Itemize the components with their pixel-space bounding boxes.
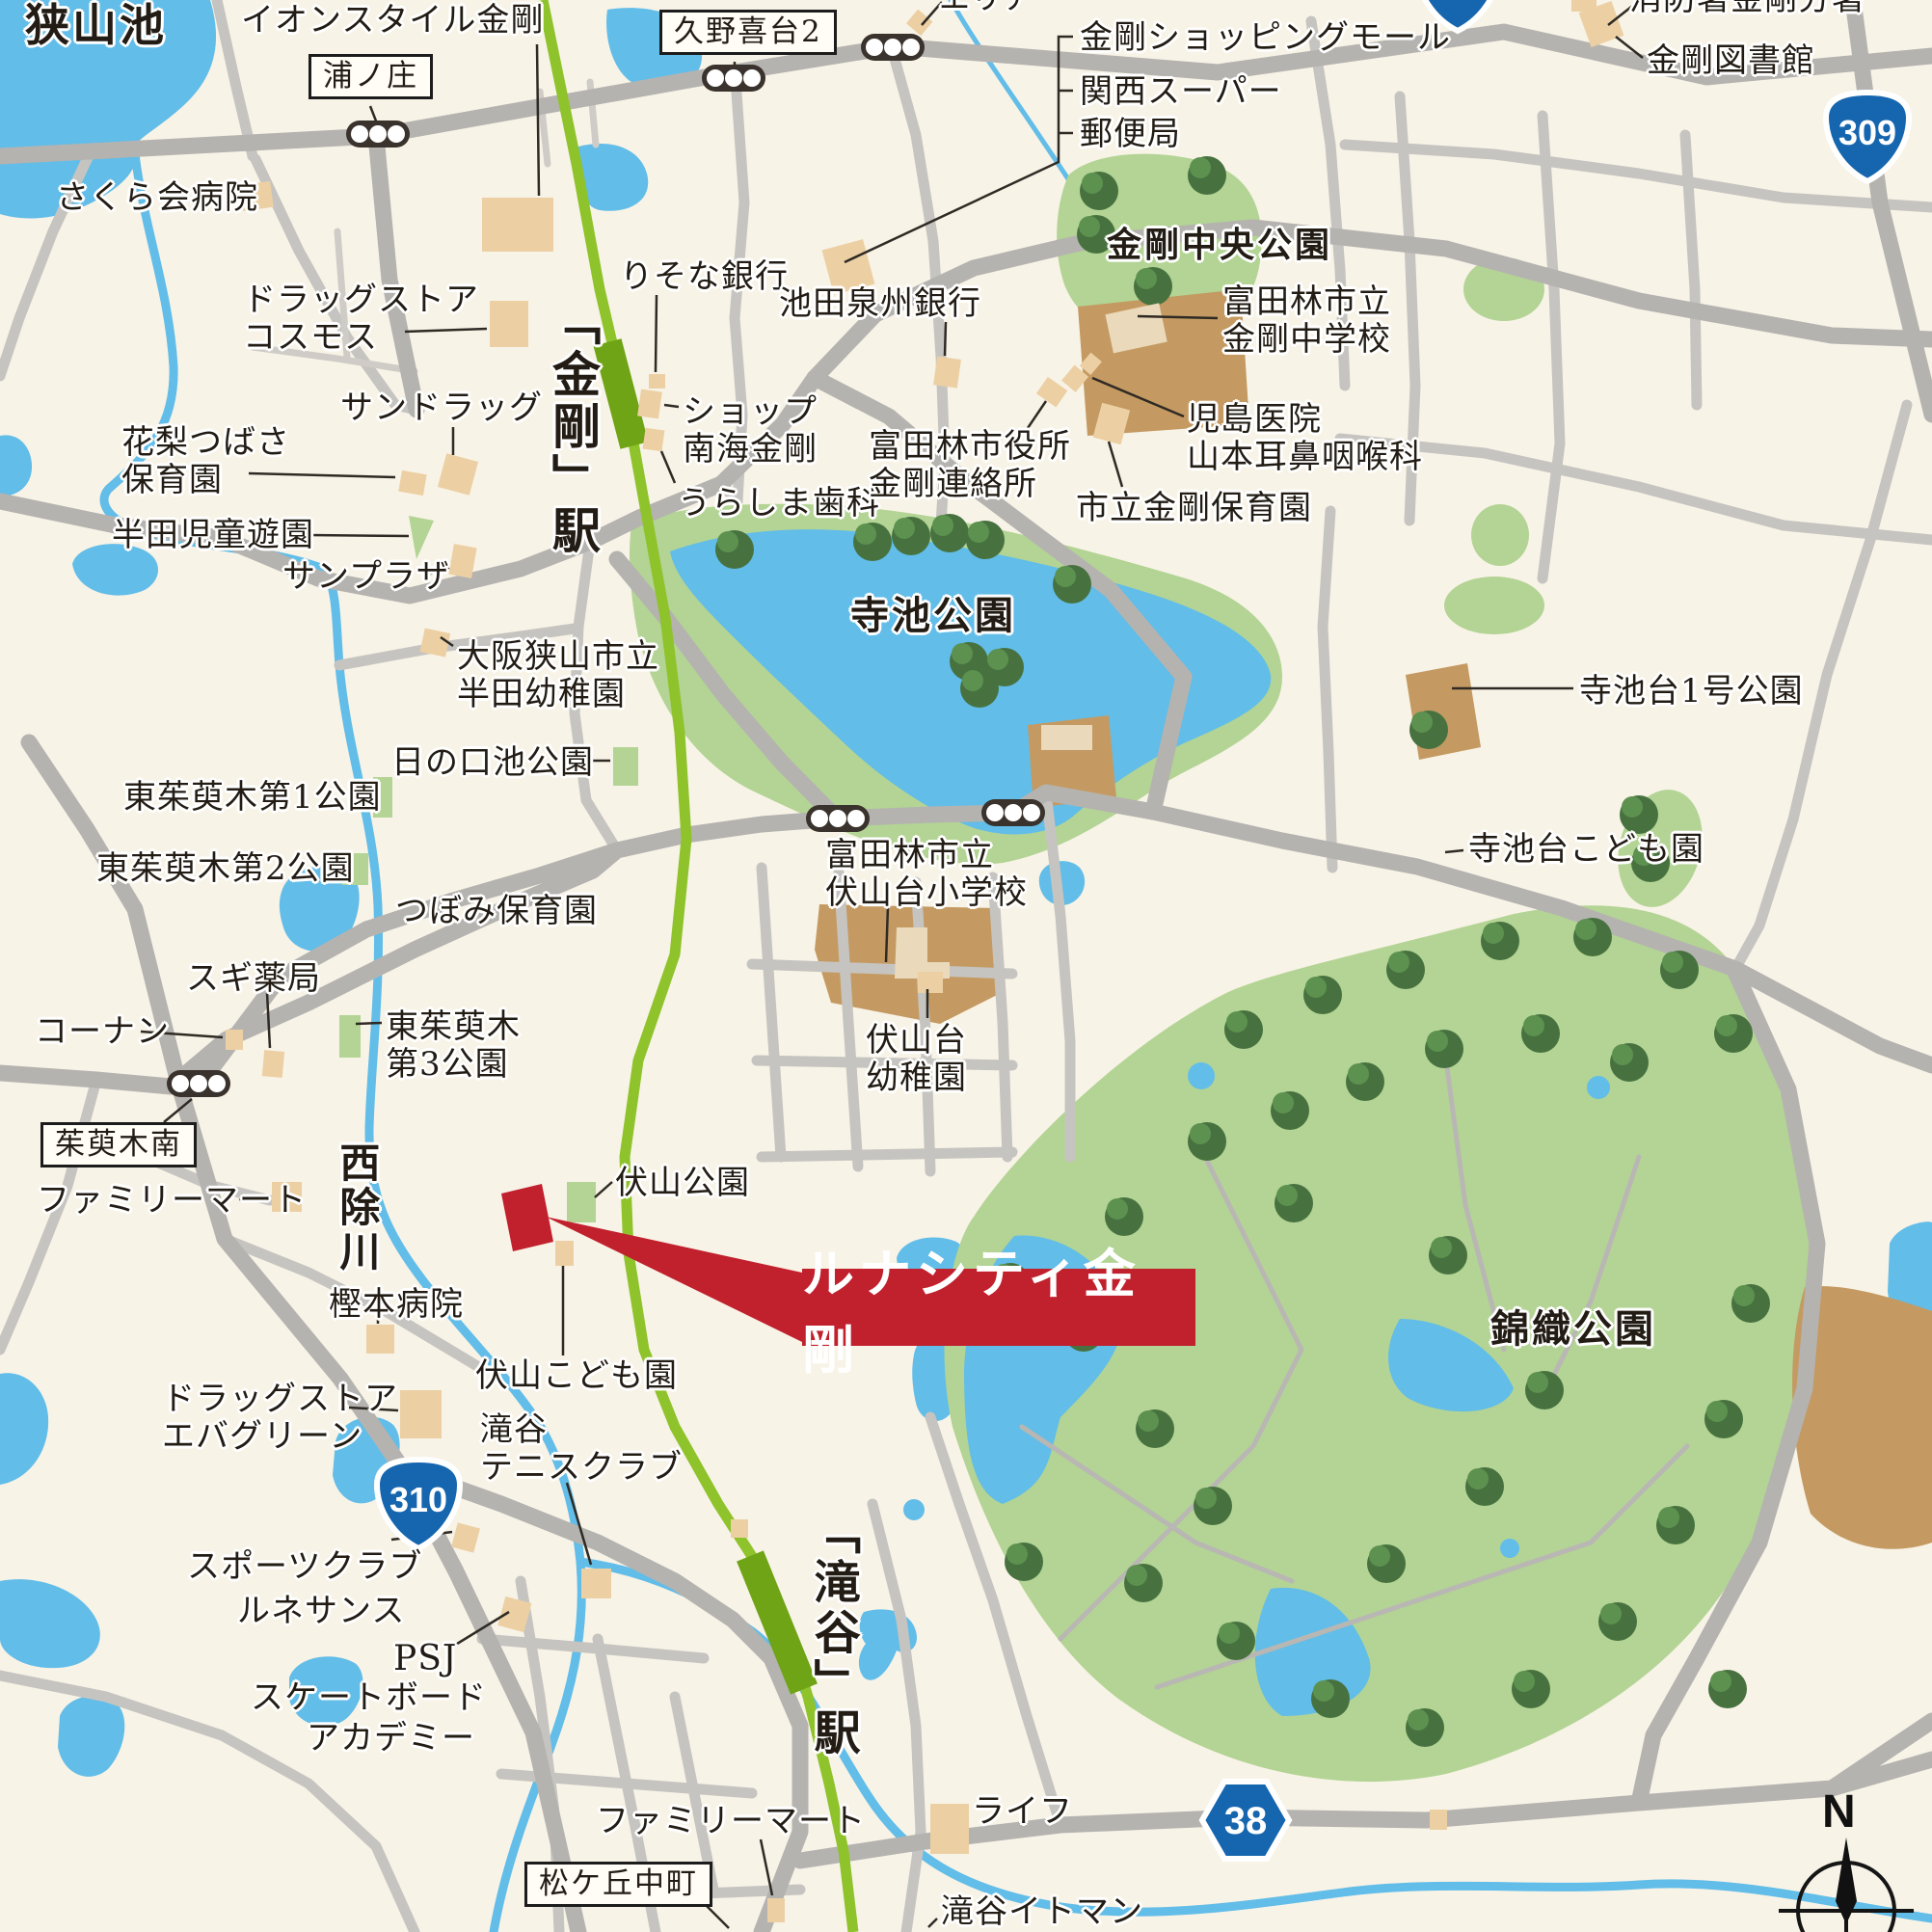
compass-north-label: N	[1822, 1785, 1856, 1838]
map-label-kongo-shopping-mall: 金剛ショッピングモール	[1080, 19, 1451, 57]
map-label-text: 南海金剛	[683, 430, 818, 469]
map-label-karin-tsubasa-hoikuen: 花梨つばさ保育園	[121, 424, 290, 499]
map-label-text: 「金剛」駅	[545, 297, 602, 557]
map-label-drugstore-cosmos: ドラッグストアコスモス	[243, 282, 479, 357]
svg-text:202: 202	[1429, 0, 1487, 2]
map-label-fushiyama-kodomoen: 伏山こども園	[475, 1357, 678, 1395]
map-label-text: 池田泉州銀行	[779, 284, 981, 323]
leader-line	[945, 322, 946, 356]
map-label-teraikedai-1go-park: 寺池台1号公園	[1579, 673, 1804, 711]
map-label-text: つぼみ保育園	[395, 892, 598, 930]
map-label-sakurakai-hospital: さくら会病院	[56, 179, 258, 217]
map-label-text: 半田児童遊園	[112, 516, 314, 554]
map-label-text: 富田林市立	[1222, 282, 1391, 321]
map-label-text: ドラッグストア	[243, 281, 479, 319]
map-label-higashi-guminoki-3-park: 東茱萸木第3公園	[386, 1008, 521, 1084]
map-label-text: 金剛連絡所	[869, 465, 1037, 503]
property-callout-wedge	[546, 1217, 802, 1342]
map-label-urashima-dental: うらしま歯科	[678, 485, 880, 523]
leader-line	[309, 535, 409, 536]
map-label-text: 松ケ丘中町	[539, 1866, 698, 1901]
map-label-text: 東茱萸木	[386, 1007, 521, 1046]
map-label-text: 西除川	[334, 1141, 381, 1275]
map-label-text: 大阪狭山市立	[457, 637, 659, 676]
map-label-text: 児島医院	[1187, 400, 1322, 439]
leader-line	[356, 1023, 382, 1024]
leader-line	[1109, 442, 1122, 487]
map-label-text: 日の口池公園	[391, 743, 594, 782]
map-label-guminoki-minami-box: 茱萸木南	[40, 1122, 197, 1167]
traffic-light-icon	[346, 121, 410, 148]
map-label-kansai-super: 関西スーパー	[1080, 73, 1282, 111]
map-label-text: 伏山台小学校	[825, 873, 1028, 912]
map-label-drugstore-evergreen: ドラッグストアエバグリーン	[162, 1381, 398, 1456]
kongo-station-mark	[607, 342, 634, 445]
map-label-text: ファミリーマート	[37, 1181, 307, 1220]
map-label-text: 富田林市役所	[869, 427, 1071, 466]
map-label-text: ライフ	[972, 1792, 1073, 1831]
map-label-handa-yochien: 大阪狭山市立半田幼稚園	[457, 638, 659, 713]
map-label-kongo-hoikuen: 市立金剛保育園	[1076, 490, 1312, 527]
map-label-text: 幼稚園	[866, 1059, 967, 1097]
map-label-kunokidai2-box: 久野喜台2	[659, 10, 837, 55]
traffic-light-icon	[702, 65, 765, 92]
map-label-skateboard-2: アカデミー	[307, 1720, 475, 1758]
map-label-text: 東茱萸木第1公園	[123, 778, 382, 817]
map-label-takidani-itoman: 滝谷イトマン	[941, 1893, 1143, 1931]
map-label-text: ファミリーマート	[596, 1802, 866, 1840]
map-label-text: 寺池台こども園	[1468, 830, 1704, 869]
map-label-text: りそな銀行	[620, 257, 789, 296]
traffic-light-icon	[167, 1070, 230, 1097]
map-label-text: 寺池公園	[850, 593, 1016, 638]
map-label-text: コーナン	[35, 1012, 170, 1051]
map-label-text: スギ薬局	[186, 959, 321, 998]
map-label-tsubomi-hoikuen: つぼみ保育園	[395, 893, 598, 930]
map-label-text: 金剛ショッピングモール	[1080, 18, 1451, 57]
map-label-text: 「滝谷」駅	[806, 1508, 860, 1758]
route-badge-309: 309	[1826, 93, 1909, 181]
map-label-text: ショップ	[683, 392, 818, 431]
map-label-text: 伏山公園	[615, 1164, 750, 1202]
map-label-kongo-station: 「金剛」駅	[546, 297, 601, 557]
leader-line	[845, 37, 1073, 262]
map-label-skateboard-1: スケートボード	[251, 1679, 487, 1717]
map-label-kongo-junior-high: 富田林市立金剛中学校	[1222, 283, 1391, 359]
map-label-text: 関西スーパー	[1080, 72, 1282, 111]
map-label-text: うらしま歯科	[678, 484, 880, 523]
map-label-text: サンドラッグ	[340, 389, 543, 427]
map-label-text: 郵便局	[1080, 115, 1181, 153]
map-label-kongo-library: 金剛図書館	[1647, 42, 1815, 80]
map-label-matsugaoka-nakamachi-box: 松ケ丘中町	[524, 1862, 712, 1907]
map-label-text: 消防署金剛分署	[1629, 0, 1865, 18]
map-label-text: 久野喜台2	[674, 14, 822, 49]
map-label-text: 伏山台	[866, 1021, 967, 1060]
map-label-takidani-tennis-club: 滝谷テニスクラブ	[480, 1411, 683, 1487]
map-label-fushiyama-park: 伏山公園	[615, 1165, 750, 1202]
traffic-light-icon	[806, 805, 870, 832]
map-label-text: 金剛中央公園	[1107, 225, 1332, 265]
map-label-sportsclub-1: スポーツクラブ	[187, 1548, 422, 1586]
map-label-shop-nankai-kongo: ショップ南海金剛	[683, 393, 818, 469]
map-label-text: ルネサンス	[237, 1592, 405, 1630]
map-label-text: 花梨つばさ	[121, 423, 290, 462]
map-label-kongo-chuo-park: 金剛中央公園	[1107, 226, 1332, 265]
map-label-kohnan: コーナン	[35, 1013, 170, 1051]
map-label-text: アカデミー	[307, 1719, 475, 1758]
leader-line	[661, 451, 675, 483]
property-marker	[501, 1184, 802, 1342]
map-label-text: 滝谷	[480, 1410, 548, 1449]
map-label-text: エバグリーン	[162, 1417, 362, 1456]
map-label-sayamaike-lake: 狭山池	[25, 0, 167, 50]
map-label-risona-bank: りそな銀行	[620, 258, 789, 296]
map-label-text: 山本耳鼻咽喉科	[1187, 438, 1423, 476]
traffic-light-icon	[861, 34, 925, 61]
map-label-fushiyamadai-elementary: 富田林市立伏山台小学校	[825, 837, 1028, 912]
property-plot	[501, 1184, 553, 1251]
map-label-text: 茱萸木南	[55, 1127, 182, 1162]
map-label-teraike-park: 寺池公園	[850, 594, 1016, 638]
map-label-uranosho-box: 浦ノ庄	[309, 54, 433, 99]
map-label-nishiyoke-river: 西除川	[334, 1141, 380, 1275]
map-label-city-office-branch: 富田林市役所金剛連絡所	[869, 428, 1071, 503]
map-label-fushiyamadai-yochien: 伏山台幼稚園	[866, 1022, 967, 1097]
leader-line	[664, 405, 679, 407]
route-badge-38: 38	[1202, 1782, 1289, 1859]
map-label-text: 浦ノ庄	[323, 59, 418, 94]
map-label-higashi-guminoki-1-park: 東茱萸木第1公園	[123, 779, 382, 817]
traffic-light-icon	[981, 799, 1045, 826]
access-map: 20230931038 狭山池イオンスタイル金剛浦ノ庄久野喜台2エリア金剛ショッ…	[0, 0, 1932, 1932]
map-label-text: コスモス	[243, 318, 378, 357]
map-label-text: ドラッグストア	[162, 1380, 398, 1418]
leader-line	[928, 1919, 937, 1927]
map-label-hinokuchiike-park: 日の口池公園	[391, 744, 594, 782]
svg-text:310: 310	[389, 1480, 447, 1519]
leader-line	[656, 295, 657, 372]
map-label-nishikori-park: 錦織公園	[1490, 1307, 1656, 1352]
map-label-kojima-clinic: 児島医院山本耳鼻咽喉科	[1187, 401, 1423, 476]
leader-line	[537, 44, 539, 196]
leader-line	[1028, 401, 1046, 428]
map-label-handa-jido-yuen: 半田児童遊園	[112, 517, 314, 554]
map-label-teraikedai-kodomoen: 寺池台こども園	[1468, 831, 1704, 869]
map-label-text: エリア	[939, 0, 1034, 16]
map-label-text: スポーツクラブ	[187, 1547, 422, 1586]
map-label-text: 錦織公園	[1490, 1306, 1656, 1352]
map-label-post-office: 郵便局	[1080, 116, 1181, 153]
map-label-higashi-guminoki-2-park: 東茱萸木第2公園	[96, 850, 355, 888]
map-label-sundrug: サンドラッグ	[340, 389, 543, 427]
map-label-text: テニスクラブ	[480, 1448, 683, 1487]
svg-text:38: 38	[1224, 1800, 1268, 1842]
map-label-sportsclub-2: ルネサンス	[237, 1593, 405, 1630]
route-badge-310: 310	[377, 1460, 460, 1548]
map-label-text: 樫本病院	[329, 1285, 464, 1324]
map-label-familymart-west: ファミリーマート	[37, 1182, 307, 1220]
map-label-text: サンプラザ	[282, 557, 450, 596]
map-label-text: 金剛中学校	[1222, 320, 1391, 359]
map-label-text: さくら会病院	[56, 178, 258, 217]
map-label-text: 半田幼稚園	[457, 675, 626, 713]
leader-line	[1445, 850, 1463, 852]
map-label-text: 金剛図書館	[1647, 41, 1815, 80]
map-label-text: PSJ	[393, 1639, 457, 1678]
map-label-text: 富田林市立	[825, 836, 994, 874]
map-label-takidani-station: 「滝谷」駅	[806, 1508, 859, 1758]
compass	[1779, 1838, 1914, 1932]
svg-text:309: 309	[1838, 113, 1896, 152]
map-label-fire-station-kongo: 消防署金剛分署	[1629, 0, 1865, 18]
map-label-text: 狭山池	[25, 0, 167, 51]
map-label-life: ライフ	[972, 1793, 1073, 1831]
map-label-text: 保育園	[121, 461, 223, 499]
map-label-sunplaza: サンプラザ	[282, 558, 450, 596]
map-label-text: 市立金剛保育園	[1076, 489, 1312, 527]
map-label-text: 伏山こども園	[475, 1356, 678, 1395]
map-label-ikeda-senshu-bank: 池田泉州銀行	[779, 285, 981, 323]
map-label-text: 第3公園	[386, 1045, 509, 1084]
leader-line	[595, 1182, 612, 1197]
map-label-text: 滝谷イトマン	[941, 1892, 1143, 1931]
map-label-kashimoto-hospital: 樫本病院	[329, 1286, 464, 1324]
map-label-text: スケートボード	[251, 1678, 487, 1717]
map-label-text: 東茱萸木第2公園	[96, 849, 355, 888]
map-label-area-partial: エリア	[939, 0, 1034, 15]
map-label-text: イオンスタイル金剛	[241, 1, 544, 40]
map-label-psj: PSJ	[393, 1639, 457, 1678]
map-label-sugi-pharmacy: スギ薬局	[186, 960, 321, 998]
map-label-familymart-south: ファミリーマート	[596, 1803, 866, 1840]
map-label-text: 寺池台1号公園	[1579, 672, 1804, 711]
property-banner: ルナシティ金剛	[802, 1269, 1195, 1346]
map-label-aeon-style-kongo: イオンスタイル金剛	[241, 2, 544, 40]
